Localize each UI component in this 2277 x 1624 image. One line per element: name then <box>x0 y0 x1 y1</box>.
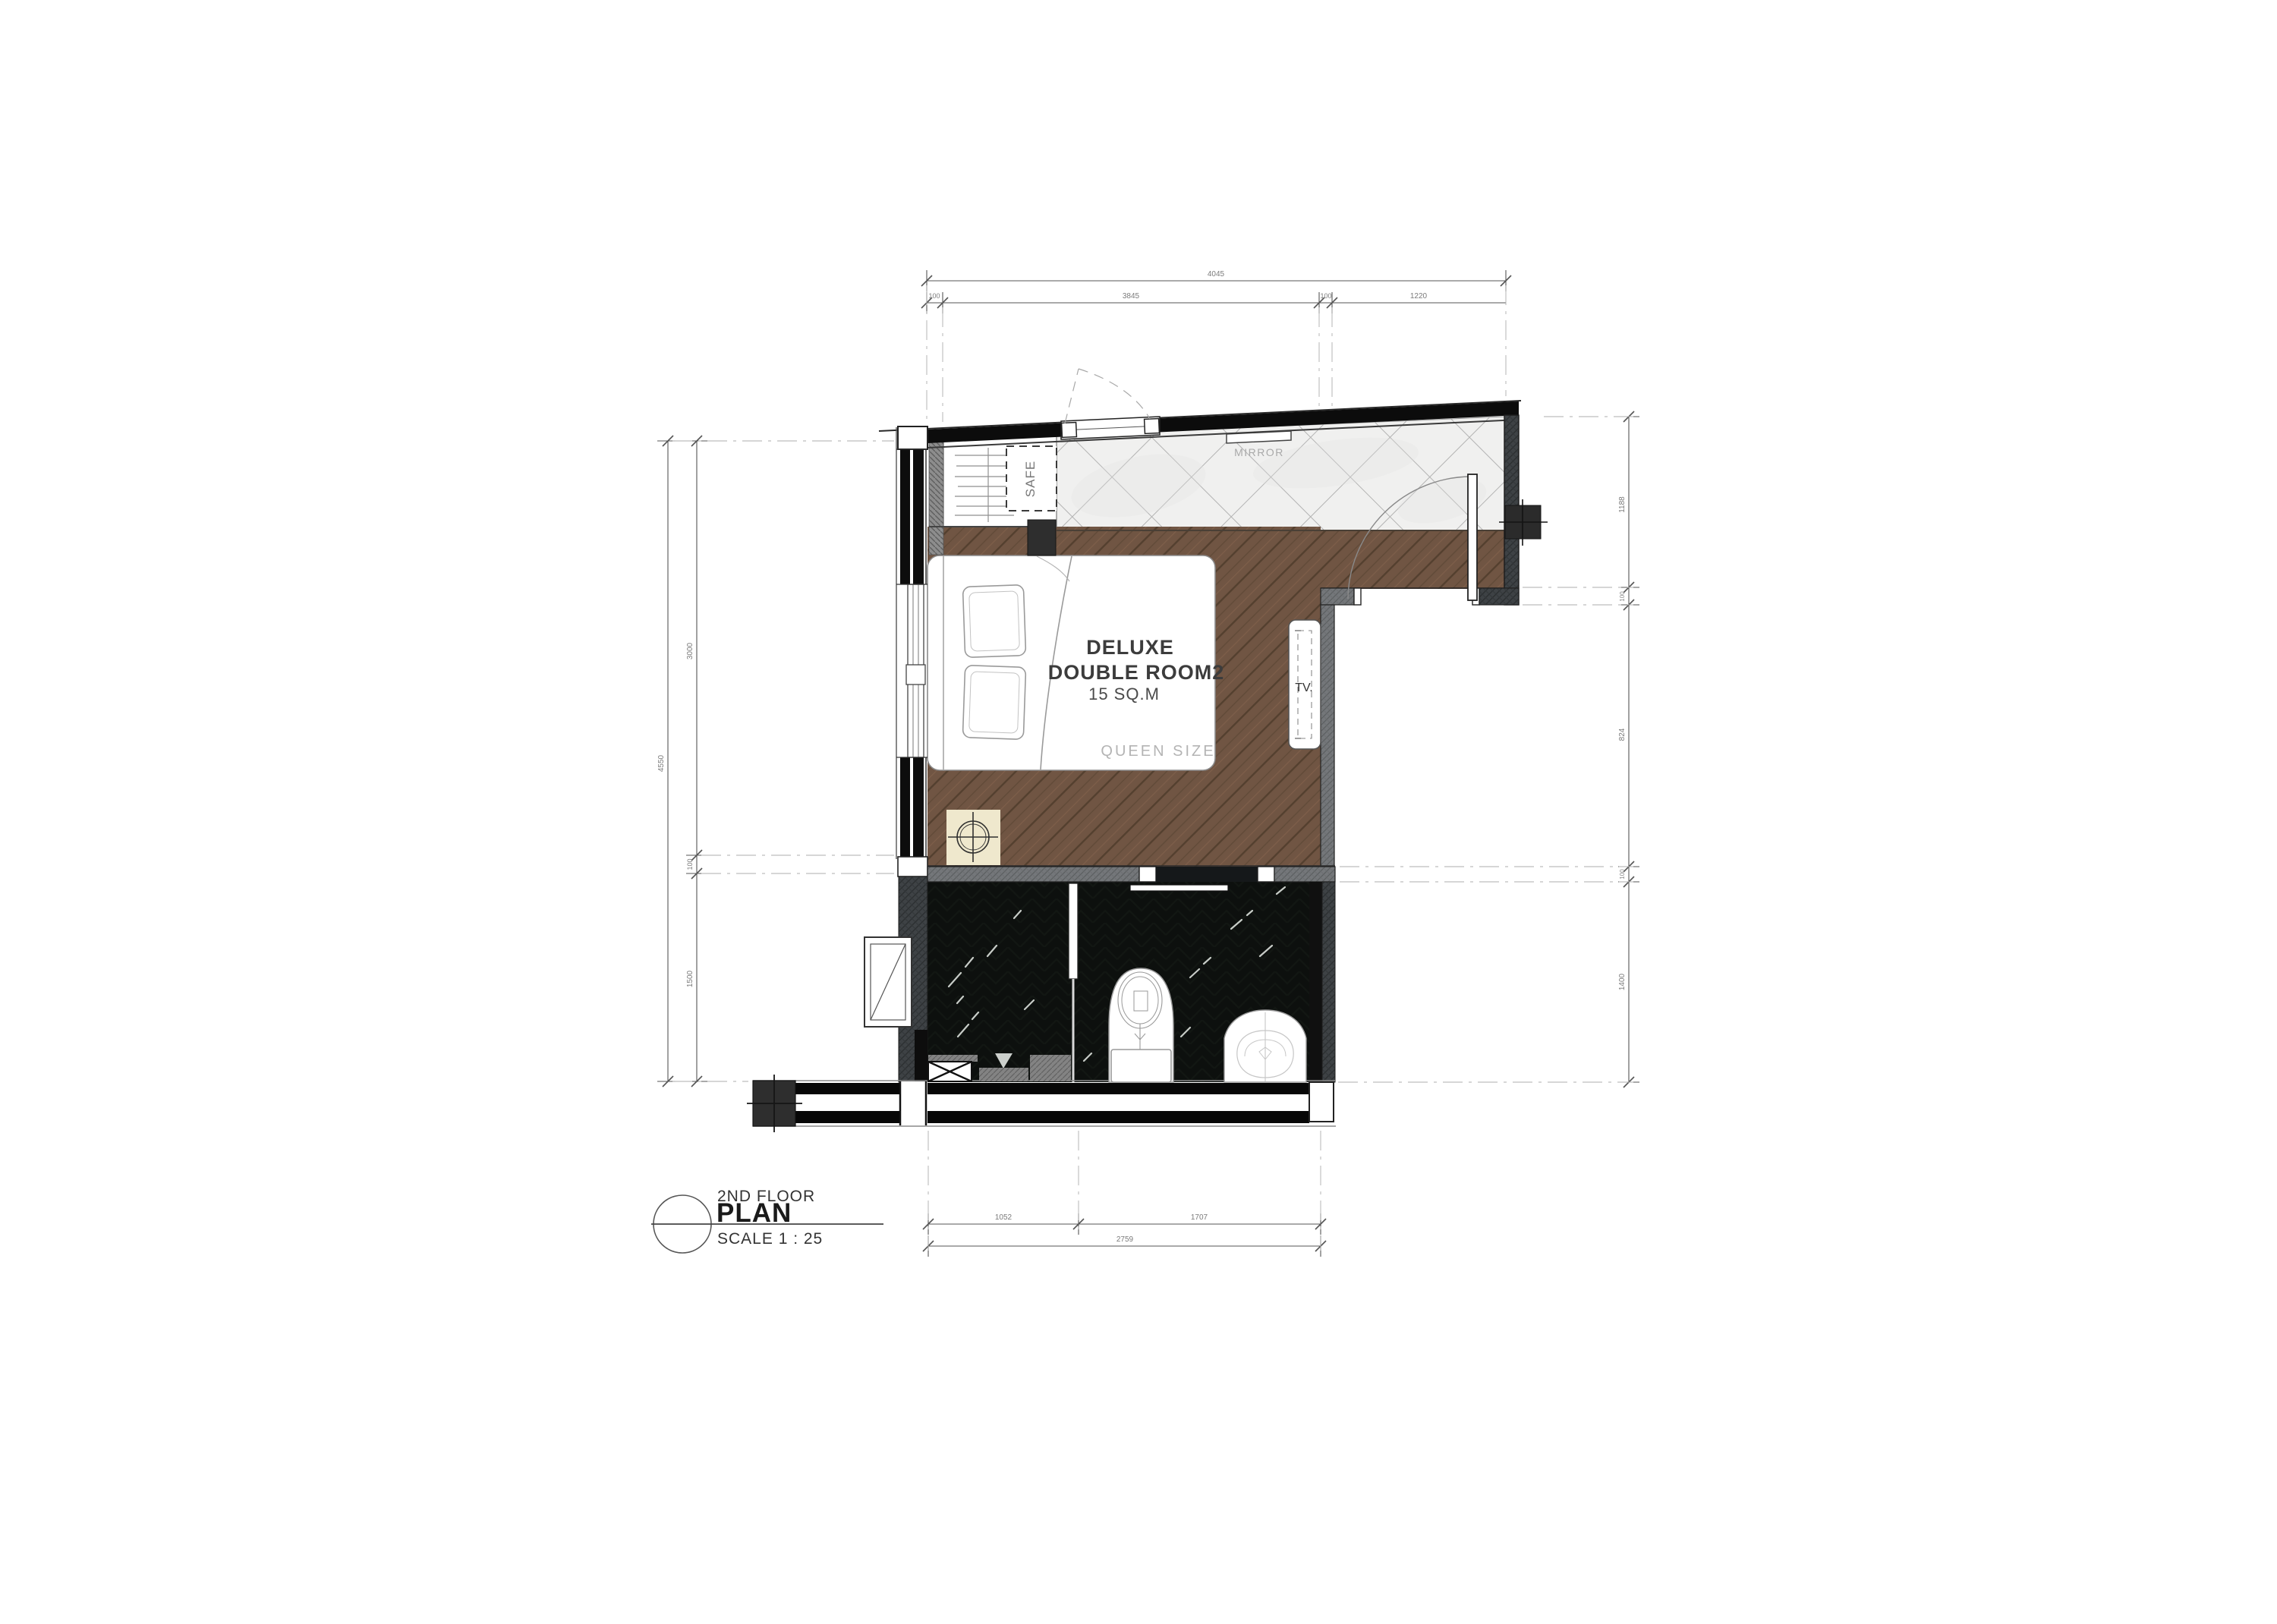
svg-text:1707: 1707 <box>1191 1213 1208 1222</box>
svg-text:100: 100 <box>686 858 694 870</box>
svg-text:SAFE: SAFE <box>1023 461 1038 497</box>
svg-text:1188: 1188 <box>1618 496 1627 513</box>
svg-text:4045: 4045 <box>1208 270 1225 279</box>
svg-text:1220: 1220 <box>1410 292 1428 301</box>
svg-text:1500: 1500 <box>686 970 694 987</box>
svg-text:MIRROR: MIRROR <box>1234 446 1284 458</box>
svg-text:2759: 2759 <box>1116 1235 1134 1244</box>
svg-text:4550: 4550 <box>657 754 666 772</box>
svg-text:PLAN: PLAN <box>716 1198 792 1228</box>
svg-text:3845: 3845 <box>1123 292 1140 301</box>
svg-text:100: 100 <box>1619 869 1626 880</box>
svg-text:TV.: TV. <box>1295 681 1312 694</box>
svg-text:SCALE 1 : 25: SCALE 1 : 25 <box>717 1230 823 1248</box>
svg-text:QUEEN SIZE: QUEEN SIZE <box>1101 743 1215 760</box>
svg-text:DOUBLE ROOM2: DOUBLE ROOM2 <box>1048 661 1225 684</box>
svg-text:DELUXE: DELUXE <box>1086 636 1174 659</box>
svg-text:1400: 1400 <box>1618 973 1627 990</box>
svg-text:824: 824 <box>1618 728 1627 741</box>
svg-text:100: 100 <box>1619 591 1626 602</box>
svg-text:15 SQ.M: 15 SQ.M <box>1088 685 1160 703</box>
svg-text:1052: 1052 <box>995 1213 1013 1222</box>
svg-text:3000: 3000 <box>686 642 694 659</box>
svg-text:100: 100 <box>1320 292 1331 300</box>
svg-text:100: 100 <box>928 292 940 300</box>
